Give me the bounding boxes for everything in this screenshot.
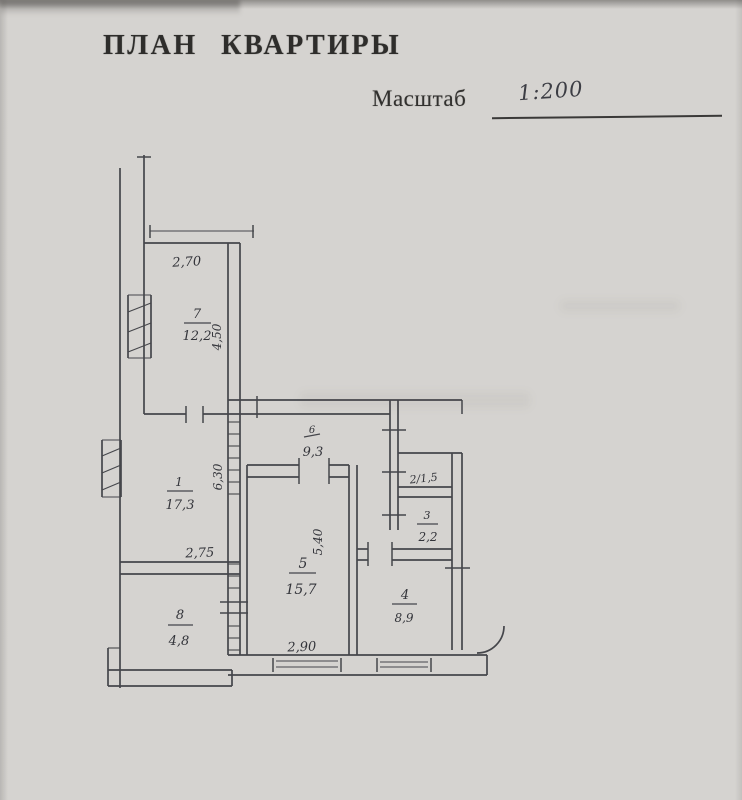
window-hatch-left-upper xyxy=(128,295,151,358)
room7-number: 7 xyxy=(193,307,202,322)
bath-bottom-wall xyxy=(357,542,452,566)
entry-door-arc xyxy=(477,626,504,653)
window-hatch-left-lower xyxy=(102,440,121,497)
room5-area: 15,7 xyxy=(285,582,316,598)
bottom-wall xyxy=(228,655,487,675)
room4-number: 4 xyxy=(400,588,409,603)
outer-right-wall xyxy=(445,453,470,650)
room5-number: 5 xyxy=(299,556,308,572)
room8-area: 4,8 xyxy=(168,634,190,649)
room5-label: 5 15,7 xyxy=(285,556,316,598)
room4-label: 4 8,9 xyxy=(392,588,417,625)
floor-plan-drawing: 7 12,2 1 17,3 6 9,3 5 15,7 2/1,5 3 2,2 xyxy=(0,0,742,800)
room8-number: 8 xyxy=(176,608,184,623)
bath-area: 2,2 xyxy=(417,530,437,544)
room8-walls xyxy=(108,648,232,686)
room8-label: 8 4,8 xyxy=(168,608,193,649)
bath-number: 3 xyxy=(424,509,431,522)
room4-area: 8,9 xyxy=(394,611,413,625)
room1-label: 1 17,3 xyxy=(166,475,195,513)
window-bottom-right xyxy=(377,658,431,672)
dim-room7-width: 2,70 xyxy=(171,254,202,271)
dim-room1-depth: 6,30 xyxy=(211,463,225,490)
wc-partition-wall xyxy=(382,400,406,530)
room7-label: 7 12,2 xyxy=(183,307,212,344)
outer-left-wall xyxy=(120,155,151,688)
room1-area: 17,3 xyxy=(166,498,195,513)
dim-room7-depth: 4,50 xyxy=(210,323,224,351)
corridor-wall xyxy=(144,396,462,423)
bath-label: 3 2,2 xyxy=(417,509,438,544)
room1-number: 1 xyxy=(175,475,183,489)
dim-room1-width: 2,75 xyxy=(184,546,214,562)
wc-label: 2/1,5 xyxy=(408,471,438,487)
hall-label: 6 9,3 xyxy=(303,425,324,460)
hall-area: 9,3 xyxy=(303,445,324,460)
room7-area: 12,2 xyxy=(183,329,212,344)
scanned-floor-plan-page: ПЛАН КВАРТИРЫ Масштаб 1:200 xyxy=(0,0,742,800)
hall-number: 6 xyxy=(309,425,316,436)
central-wall xyxy=(220,414,248,655)
dim-room5-depth: 5,40 xyxy=(311,528,325,555)
dim-room5-width: 2,90 xyxy=(286,640,316,656)
wc-number-area: 2/1,5 xyxy=(408,471,438,487)
window-bottom-left xyxy=(273,658,341,672)
room1-bottom-wall xyxy=(120,562,240,574)
